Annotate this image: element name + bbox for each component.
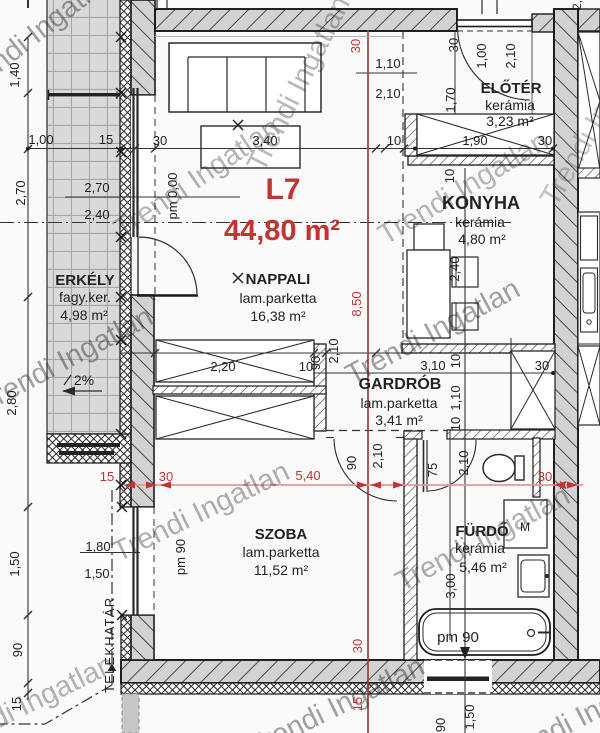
svg-text:kerámia: kerámia bbox=[455, 540, 505, 556]
svg-text:1,50: 1,50 bbox=[84, 566, 109, 581]
svg-text:1,10: 1,10 bbox=[448, 385, 463, 410]
svg-text:2,10: 2,10 bbox=[326, 338, 341, 363]
svg-text:1,80: 1,80 bbox=[85, 539, 110, 554]
svg-text:30: 30 bbox=[153, 133, 167, 148]
svg-text:2,10: 2,10 bbox=[370, 443, 385, 468]
svg-text:M: M bbox=[520, 520, 530, 534]
svg-text:fagy.ker.: fagy.ker. bbox=[59, 289, 111, 305]
svg-text:30: 30 bbox=[350, 639, 365, 653]
svg-text:11,52 m²: 11,52 m² bbox=[254, 562, 309, 578]
svg-text:2,80: 2,80 bbox=[4, 390, 19, 415]
svg-text:2,10: 2,10 bbox=[570, 0, 584, 10]
svg-text:10: 10 bbox=[448, 354, 463, 368]
svg-text:1,10: 1,10 bbox=[375, 56, 400, 71]
svg-text:30: 30 bbox=[535, 358, 549, 373]
svg-text:30: 30 bbox=[159, 469, 173, 484]
svg-text:3,10: 3,10 bbox=[420, 358, 445, 373]
svg-text:5,40: 5,40 bbox=[295, 468, 320, 483]
svg-text:1,00: 1,00 bbox=[474, 43, 489, 68]
svg-text:1,90: 1,90 bbox=[462, 133, 487, 148]
svg-text:4,98 m²: 4,98 m² bbox=[60, 307, 108, 323]
svg-text:NAPPALI: NAPPALI bbox=[246, 271, 311, 288]
svg-text:90: 90 bbox=[10, 643, 25, 657]
svg-text:15: 15 bbox=[9, 697, 24, 711]
svg-text:1,70: 1,70 bbox=[443, 87, 458, 112]
svg-text:3,23 m²: 3,23 m² bbox=[486, 113, 534, 129]
svg-text:2%: 2% bbox=[74, 372, 94, 388]
svg-text:5,46 m²: 5,46 m² bbox=[459, 559, 507, 575]
svg-text:pm 90: pm 90 bbox=[173, 539, 188, 575]
svg-text:2,70: 2,70 bbox=[13, 180, 28, 205]
svg-text:2,70: 2,70 bbox=[84, 180, 109, 195]
svg-text:10: 10 bbox=[448, 417, 463, 431]
svg-text:2,40: 2,40 bbox=[447, 256, 462, 281]
svg-text:15: 15 bbox=[350, 697, 365, 711]
svg-text:15: 15 bbox=[99, 132, 113, 147]
svg-text:SZOBA: SZOBA bbox=[255, 526, 308, 543]
svg-text:lam.parketta: lam.parketta bbox=[242, 544, 319, 560]
svg-text:kerámia: kerámia bbox=[485, 97, 535, 113]
svg-text:90: 90 bbox=[433, 718, 448, 732]
svg-text:3,00: 3,00 bbox=[443, 573, 458, 598]
svg-text:1,00: 1,00 bbox=[28, 132, 53, 147]
svg-text:GARDRÓB: GARDRÓB bbox=[359, 374, 442, 393]
svg-text:90: 90 bbox=[344, 456, 359, 470]
svg-text:30: 30 bbox=[348, 39, 363, 53]
svg-text:2,20: 2,20 bbox=[210, 359, 235, 374]
svg-text:pm 0,00: pm 0,00 bbox=[165, 173, 180, 220]
svg-text:30: 30 bbox=[538, 133, 552, 148]
svg-text:ELŐTÉR: ELŐTÉR bbox=[481, 79, 542, 97]
svg-text:4,80 m²: 4,80 m² bbox=[458, 231, 506, 247]
svg-text:90: 90 bbox=[308, 356, 323, 370]
svg-text:30: 30 bbox=[538, 469, 552, 484]
svg-text:TELEKHATÁR: TELEKHATÁR bbox=[102, 597, 117, 693]
svg-text:2,40: 2,40 bbox=[84, 207, 109, 222]
svg-text:30: 30 bbox=[446, 38, 461, 52]
svg-text:2,10: 2,10 bbox=[375, 86, 400, 101]
svg-text:lam.parketta: lam.parketta bbox=[239, 290, 316, 306]
svg-text:3,41 m²: 3,41 m² bbox=[375, 412, 423, 428]
svg-text:KONYHA: KONYHA bbox=[442, 193, 520, 213]
svg-text:1,40: 1,40 bbox=[7, 62, 22, 87]
svg-text:8,50: 8,50 bbox=[349, 291, 364, 316]
svg-text:16,38 m²: 16,38 m² bbox=[250, 308, 306, 324]
svg-text:1,50: 1,50 bbox=[462, 704, 477, 729]
svg-text:pm 90: pm 90 bbox=[437, 629, 479, 646]
svg-text:ERKÉLY: ERKÉLY bbox=[55, 272, 114, 289]
svg-text:75: 75 bbox=[425, 463, 440, 477]
svg-text:3,40: 3,40 bbox=[252, 133, 277, 148]
svg-text:FÜRDŐ: FÜRDŐ bbox=[455, 522, 509, 540]
svg-text:10: 10 bbox=[442, 169, 457, 183]
svg-text:44,80 m²: 44,80 m² bbox=[224, 215, 340, 247]
svg-text:kerámia: kerámia bbox=[455, 214, 505, 230]
svg-text:2,10: 2,10 bbox=[456, 450, 471, 475]
svg-text:lam.parketta: lam.parketta bbox=[360, 395, 437, 411]
svg-text:15: 15 bbox=[100, 469, 114, 484]
svg-text:1,50: 1,50 bbox=[7, 551, 22, 576]
svg-text:L7: L7 bbox=[265, 173, 300, 206]
svg-text:10: 10 bbox=[387, 133, 401, 148]
svg-text:2,10: 2,10 bbox=[503, 43, 518, 68]
